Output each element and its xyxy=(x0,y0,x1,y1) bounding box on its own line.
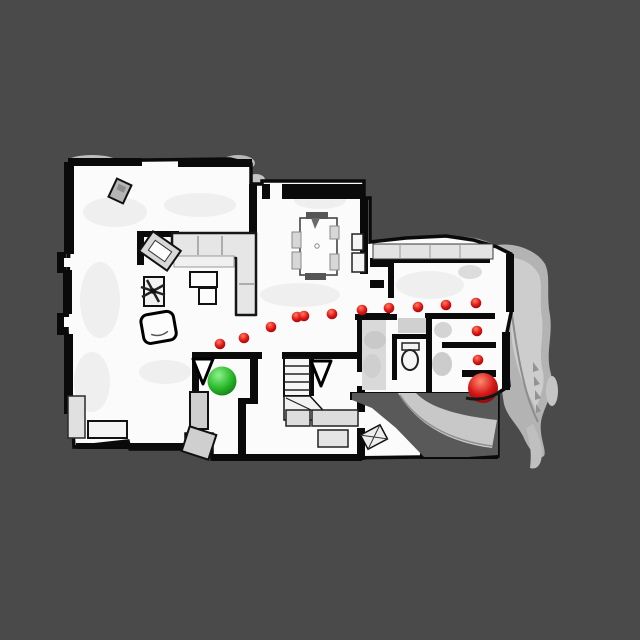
waypoint-dot-icon xyxy=(327,309,338,320)
table-end-cap xyxy=(306,212,328,219)
mesh-fragment xyxy=(546,376,558,406)
kitchen-clutter xyxy=(458,265,482,279)
table-end-cap xyxy=(305,273,326,280)
closet-clutter xyxy=(432,352,452,376)
closet-clutter xyxy=(434,322,452,338)
waypoint-dot-icon xyxy=(471,298,482,309)
armchair xyxy=(140,310,178,344)
waypoint-dot-icon xyxy=(239,333,250,344)
waypoint-dot-icon xyxy=(299,311,310,322)
waypoint-dot-icon xyxy=(215,339,226,350)
closet-clutter xyxy=(398,318,426,333)
wall-radiators xyxy=(352,234,365,272)
closet-door-panel xyxy=(190,392,208,429)
toilet xyxy=(402,350,418,370)
waypoint-dot-icon xyxy=(357,305,368,316)
closet-clutter xyxy=(364,331,386,349)
waypoint-dot-icon xyxy=(472,326,483,337)
scene-canvas xyxy=(0,0,640,640)
start-sphere-icon xyxy=(208,367,237,396)
waypoint-dot-icon xyxy=(413,302,424,313)
waypoint-dot-icon xyxy=(473,355,484,366)
closet-clutter xyxy=(363,354,381,378)
waypoint-dot-icon xyxy=(266,322,277,333)
kitchen-counter xyxy=(373,244,493,259)
waypoint-dot-icon xyxy=(384,303,395,314)
toilet-tank xyxy=(402,343,419,350)
sofa-cushion xyxy=(174,256,234,267)
3d-viewport[interactable] xyxy=(0,0,640,640)
waypoint-dot-icon xyxy=(441,300,452,311)
